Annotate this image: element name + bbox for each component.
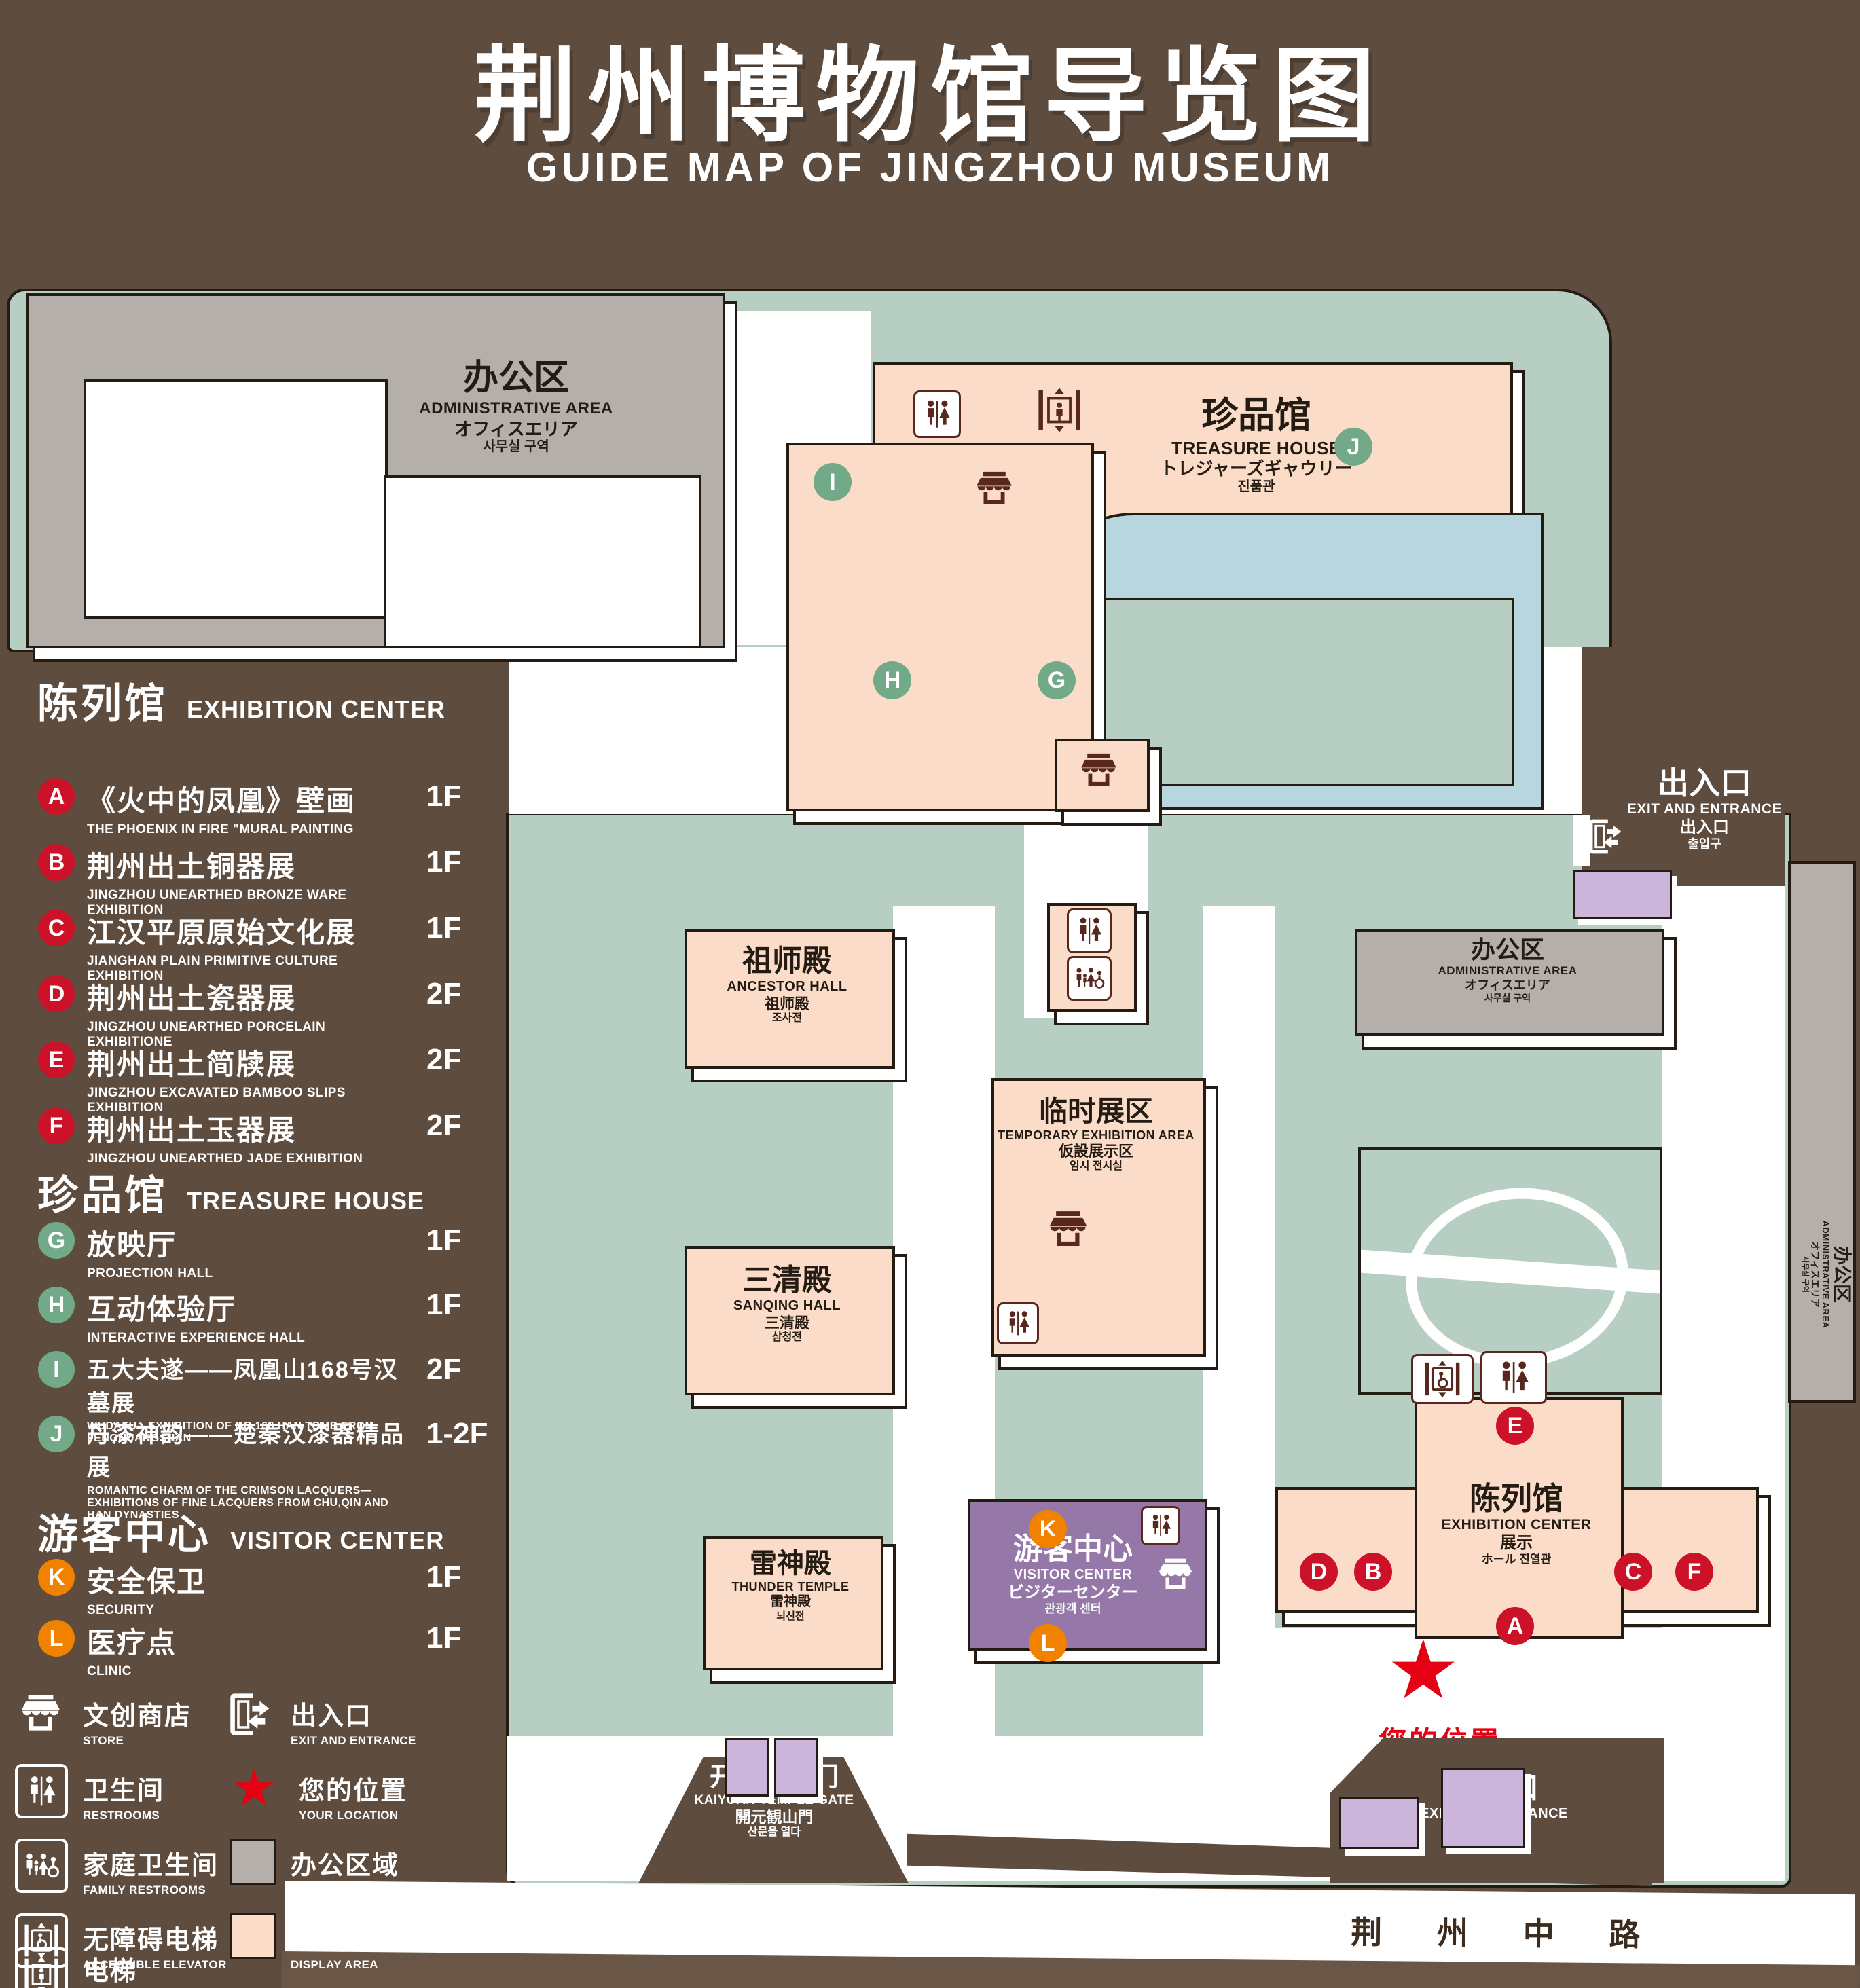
gate-booth [1573,870,1672,919]
legend-symbol-elevator: 电梯Elevator [83,1950,137,1988]
store-icon [1046,1209,1091,1253]
map-marker-K: K [1029,1510,1067,1548]
legend-item-A: A 《火中的凤凰》壁画THE PHOENIX IN FIRE "MURAL PA… [0,778,503,839]
your-location-star-icon: ★ [231,1763,277,1814]
path [1203,906,1275,1748]
label-exit-right: 出入口 EXIT AND ENTRANCE 出入口 출입구 [1623,765,1786,852]
page-title: 荆州博物馆导览图 [0,12,1860,162]
label-admin-right-strip: 办公区 ADMINISTRATIVE AREA オフィスエリア 사무실 구역 [1791,1149,1853,1400]
restroom-icon [1141,1506,1180,1545]
family-restroom-icon [15,1839,68,1893]
label-exhibition-center: 陈列馆 EXHIBITION CENTER 展示 ホール 진열관 [1415,1480,1618,1566]
road-name: 荆 州 中 路 [950,1904,1860,1959]
store-icon [973,469,1015,511]
legend-symbol-display: 展示区域DISPLAY AREA [291,1919,399,1972]
legend-section-exhibition-center: 陈列馆EXHIBITION CENTER [37,671,445,730]
legend-symbol-store: 文创商店STORE [83,1695,192,1748]
legend-item-K: K 安全保卫SECURITY 1F [0,1559,503,1620]
legend-symbol-restroom: 卫生间RESTROOMS [83,1769,164,1822]
your-location-star-icon: ★ [1387,1630,1460,1711]
store-icon [18,1692,64,1738]
legend-section-visitor-center: 游客中心VISITOR CENTER [37,1502,444,1561]
gate-booth [725,1738,769,1797]
label-ancestor-hall: 祖师殿 ANCESTOR HALL 祖师殿 조사전 [687,944,887,1025]
map-marker-B: B [1354,1553,1392,1591]
legend-item-D: D 荆州出土瓷器展JINGZHOU UNEARTHED PORCELAIN EX… [0,976,503,1037]
courtyard [84,379,388,619]
legend-symbol-family: 家庭卫生间FAMILY RESTROOMS [83,1844,219,1897]
restroom-icon [997,1302,1039,1344]
courtyard [384,475,701,648]
label-admin-center: 办公区 ADMINISTRATIVE AREA オフィスエリア 사무실 구역 [1358,936,1657,1004]
legend-item-I: I 五大夫遂——凤凰山168号汉墓展WUDAFU—EXHIBITION OF N… [0,1351,503,1412]
legend-symbol-exit: 出入口EXIT AND ENTRANCE [291,1695,416,1748]
map-marker-D: D [1300,1553,1338,1591]
elevator-icon [15,1947,68,1988]
restroom-icon [1067,908,1112,953]
restroom-icon [15,1764,68,1818]
label-sanqing-hall: 三清殿 SANQING HALL 三清殿 삼청전 [687,1263,887,1344]
family-restroom-icon [1067,956,1112,1001]
gate-booth [774,1738,818,1797]
label-temporary-exhibition: 临时展区 TEMPORARY EXHIBITION AREA 仮設展示区 임시 … [993,1094,1199,1173]
legend-item-F: F 荆州出土玉器展JINGZHOU UNEARTHED JADE EXHIBIT… [0,1107,503,1168]
store-icon [1156,1556,1195,1596]
exit-icon [1585,817,1624,856]
building-exhibition-center: 陈列馆 EXHIBITION CENTER 展示 ホール 진열관 E D B C… [1275,1397,1759,1635]
label-admin-top-left: 办公区 ADMINISTRATIVE AREA オフィスエリア 사무실 구역 [367,358,665,456]
gate-booth [1441,1768,1525,1848]
accessible-elevator-icon [1411,1354,1474,1404]
building-admin-right-strip: 办公区 ADMINISTRATIVE AREA オフィスエリア 사무실 구역 [1788,861,1856,1403]
exit-icon [225,1691,273,1738]
restroom-icon [913,390,961,438]
map-marker-F: F [1675,1553,1713,1591]
store-icon [1078,751,1120,793]
elevator-icon [1036,386,1083,434]
office-area-swatch [230,1839,276,1885]
legend-item-C: C 江汉平原原始文化展JIANGHAN PLAIN PRIMITIVE CULT… [0,910,503,971]
legend-item-H: H 互动体验厅INTERACTIVE EXPERIENCE HALL 1F [0,1287,503,1348]
display-area-swatch [230,1913,276,1959]
legend-item-G: G 放映厅PROJECTION HALL 1F [0,1222,503,1283]
label-thunder-temple: 雷神殿 THUNDER TEMPLE 雷神殿 뇌신전 [705,1548,876,1623]
page-subtitle: GUIDE MAP OF JINGZHOU MUSEUM [0,144,1860,191]
guide-map-poster: 荆州博物馆导览图 GUIDE MAP OF JINGZHOU MUSEUM 办公… [0,0,1860,1988]
legend-symbol-location: 您的位置YOUR LOCATION [299,1769,407,1822]
map-marker-I: I [814,463,852,501]
restroom-icon [1480,1351,1547,1404]
legend-item-L: L 医疗点CLINIC 1F [0,1620,503,1681]
map-marker-L: L [1029,1624,1067,1662]
map-marker-C: C [1614,1553,1652,1591]
map-marker-G: G [1038,661,1076,699]
gate-booth [1339,1797,1419,1849]
map-marker-J: J [1334,428,1372,466]
map-marker-A: A [1496,1607,1534,1645]
legend-item-J: J 丹漆神韵——楚秦汉漆器精品展ROMANTIC CHARM OF THE CR… [0,1416,503,1490]
legend-symbol-office: 办公区域OFFICE AREA [291,1844,399,1897]
map-marker-H: H [873,661,911,699]
map-marker-E: E [1496,1407,1534,1445]
label-visitor-center: 游客中心 VISITOR CENTER ビジターセンター 관광객 센터 [974,1532,1171,1616]
legend-item-E: E 荆州出土简牍展JINGZHOU EXCAVATED BAMBOO SLIPS… [0,1042,503,1103]
legend-item-B: B 荆州出土铜器展JINGZHOU UNEARTHED BRONZE WARE … [0,844,503,905]
legend-section-treasure-house: 珍品馆TREASURE HOUSE [37,1162,424,1221]
